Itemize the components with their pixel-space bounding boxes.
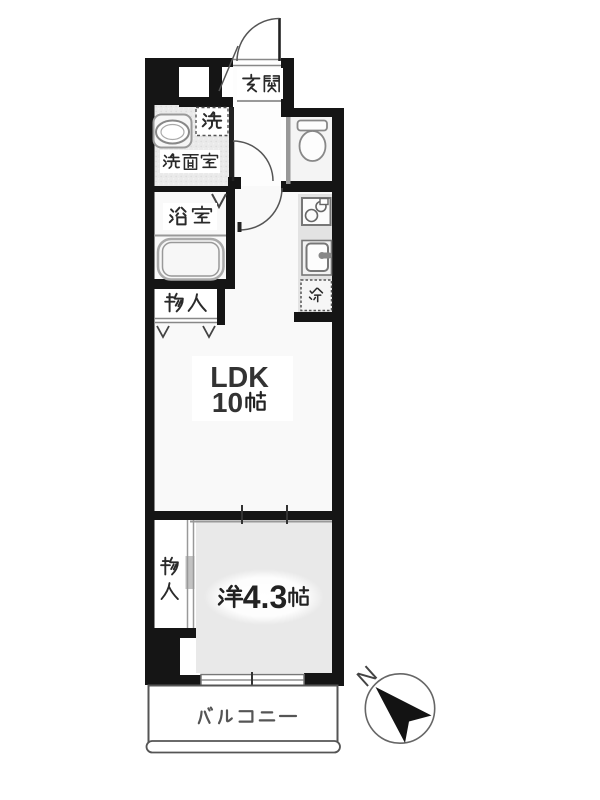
svg-text:4.3: 4.3 bbox=[243, 579, 287, 615]
svg-text:10: 10 bbox=[212, 387, 243, 418]
